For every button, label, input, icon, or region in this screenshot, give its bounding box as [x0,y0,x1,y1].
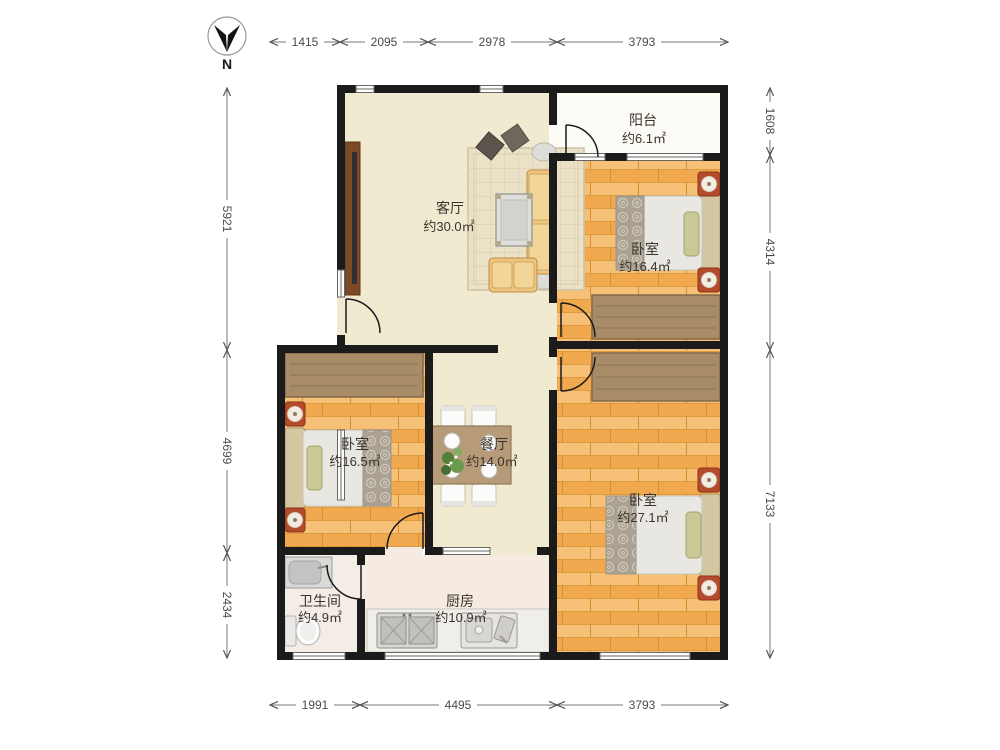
dim-right-2: 4314 [763,239,777,266]
dim-right-3: 7133 [763,491,777,518]
wall [557,85,728,93]
svg-text:客厅: 客厅 [436,200,464,216]
bed-pillow [307,446,322,490]
tv [352,152,357,284]
wall [557,341,728,349]
sofa-cushion [492,262,512,288]
plate [444,433,460,449]
dining-chair [472,406,496,428]
bed-headboard [285,428,305,508]
bathroom-basin [289,561,321,584]
dim-left-1: 5921 [220,206,234,233]
window [293,653,345,660]
dim-top-4: 3793 [629,35,656,49]
window [600,653,690,660]
wall [277,547,385,555]
window [385,653,540,660]
nightstand [698,468,720,492]
bedroom-br-door-gap [549,357,557,391]
dining-kitchen-opening [490,547,537,555]
floor-plan: 客厅 约30.0㎡ 阳台 约6.1㎡ 卧室 约16.4㎡ 卧室 约16.5㎡ 餐… [0,0,1000,750]
wall [549,337,557,357]
bed-headboard [700,194,720,274]
nightstand [285,402,305,426]
dining-chair [441,484,465,506]
wall [549,93,557,125]
svg-text:餐厅: 餐厅 [480,436,508,452]
wall [277,345,345,353]
nightstand [698,576,720,600]
svg-text:约16.5㎡: 约16.5㎡ [329,454,380,469]
svg-text:卧室: 卧室 [341,436,369,452]
living-dining-opening [498,345,549,353]
svg-text:约14.0㎡: 约14.0㎡ [466,454,517,469]
window [480,86,503,93]
north-compass-icon: N [208,17,246,72]
dim-left-2: 4699 [220,438,234,465]
dim-bottom-1: 1991 [302,698,329,712]
dim-right-1: 1608 [763,108,777,135]
dining-chair [472,484,496,506]
dim-top-1: 1415 [292,35,319,49]
wall [425,345,498,353]
svg-text:卫生间: 卫生间 [299,593,341,609]
window [627,154,703,161]
toilet-tank [285,616,296,646]
dim-left-3: 2434 [220,592,234,619]
north-label: N [222,56,232,72]
nightstand [285,508,305,532]
window [443,548,490,555]
svg-text:约30.0㎡: 约30.0㎡ [423,219,474,234]
dim-top-2: 2095 [371,35,398,49]
wall [345,345,433,353]
svg-text:约27.1㎡: 约27.1㎡ [617,510,668,525]
dim-top-3: 2978 [479,35,506,49]
svg-text:卧室: 卧室 [631,241,659,257]
svg-text:约10.9㎡: 约10.9㎡ [435,610,486,625]
wall [357,599,365,652]
dining-chair [441,406,465,428]
coffee-table-top [501,200,527,240]
svg-text:约6.1㎡: 约6.1㎡ [622,131,666,146]
window [356,86,374,93]
nightstand [698,268,720,292]
nightstand [698,172,720,196]
sofa-cushion [514,262,534,288]
floor-plan-page: 客厅 约30.0㎡ 阳台 约6.1㎡ 卧室 约16.4㎡ 卧室 约16.5㎡ 餐… [0,0,1000,750]
window [338,270,345,297]
bed-pillow [686,512,701,558]
dim-bottom-3: 3793 [629,698,656,712]
dim-bottom-2: 4495 [445,698,472,712]
svg-text:约16.4㎡: 约16.4㎡ [619,259,670,274]
wall [549,153,557,303]
bedroom-tr-door-gap [549,303,557,337]
wall [425,353,433,555]
svg-text:厨房: 厨房 [446,593,474,609]
bed-pillow [684,212,699,256]
wall [337,85,345,270]
svg-text:阳台: 阳台 [629,112,657,128]
svg-text:约4.9㎡: 约4.9㎡ [298,610,342,625]
svg-text:卧室: 卧室 [629,492,657,508]
wall [277,345,285,660]
wall [720,85,728,660]
bedroom-left-door-gap [385,547,423,555]
wall [433,547,443,555]
wall [357,555,365,565]
window [575,154,605,161]
entry-door-gap [337,297,345,335]
bed-headboard [700,494,720,576]
wall [549,390,557,652]
